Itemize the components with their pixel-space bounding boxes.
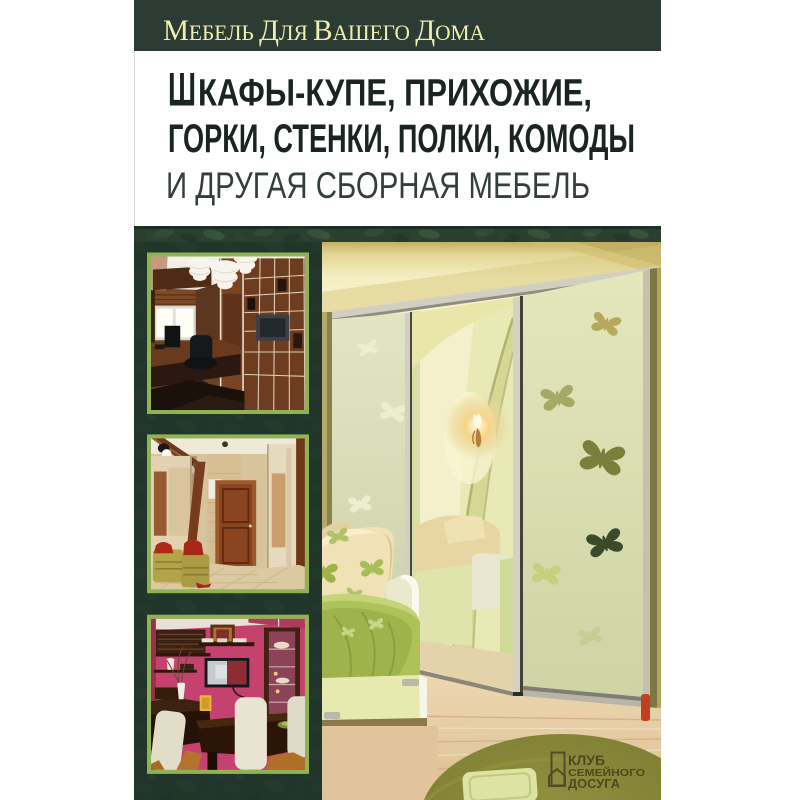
svg-text:КАФЫ-КУПЕ, ПРИХОЖИЕ,: КАФЫ-КУПЕ, ПРИХОЖИЕ, xyxy=(198,73,592,115)
svg-text:Ш: Ш xyxy=(168,63,196,116)
svg-text:И ДРУГАЯ СБОРНАЯ МЕБЕЛЬ: И ДРУГАЯ СБОРНАЯ МЕБЕЛЬ xyxy=(166,165,590,206)
svg-text:ДОСУГА: ДОСУГА xyxy=(568,777,620,791)
svg-text:КЛУБ: КЛУБ xyxy=(568,752,605,768)
svg-text:ГОРКИ, СТЕНКИ, ПОЛКИ, КОМОДЫ: ГОРКИ, СТЕНКИ, ПОЛКИ, КОМОДЫ xyxy=(168,117,635,161)
